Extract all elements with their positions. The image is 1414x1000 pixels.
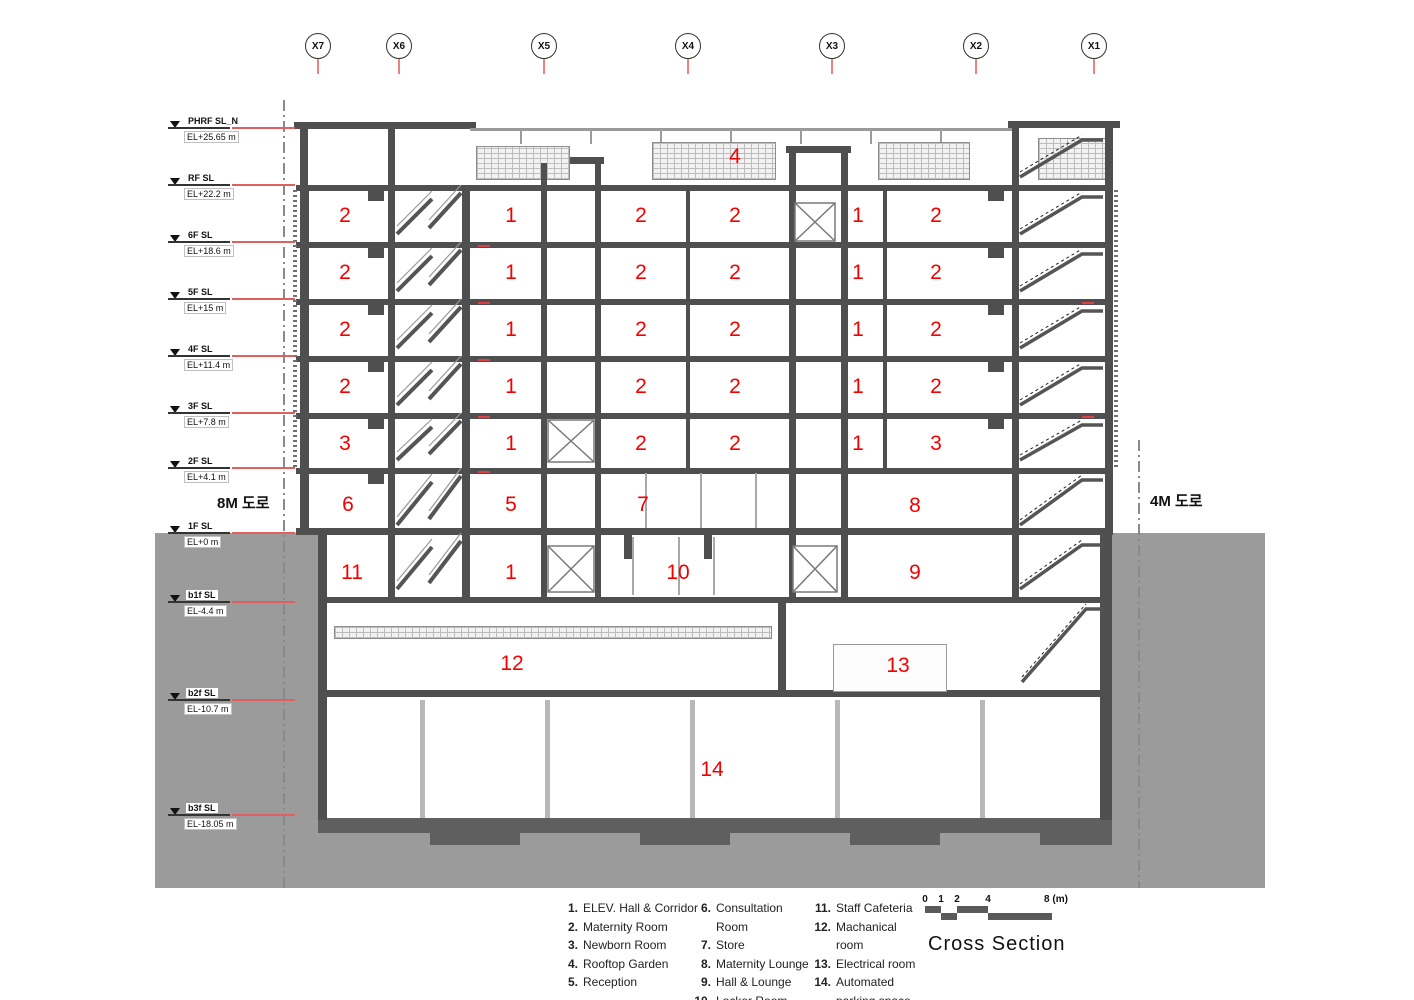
- level-line-black: [168, 127, 230, 129]
- level-line-black: [168, 467, 230, 469]
- legend-item-number: 9.: [693, 973, 711, 992]
- level-name: 1F SL: [186, 521, 215, 531]
- beam-cap: [368, 248, 384, 258]
- level-name: 4F SL: [186, 344, 215, 354]
- stair-tower-roof-slab: [1008, 121, 1120, 128]
- legend-item: 6.Consultation Room: [693, 899, 818, 936]
- legend-item: 5.Reception: [560, 973, 700, 992]
- level-elevation: EL-10.7 m: [184, 703, 232, 715]
- level-dash: [1082, 302, 1094, 304]
- level-line-red: [232, 184, 295, 186]
- legend-item: 9.Hall & Lounge: [693, 973, 818, 992]
- level-line-red: [232, 467, 295, 469]
- room-number-2: 2: [930, 375, 942, 399]
- scale-tick-label: 4: [985, 894, 991, 905]
- legend-item-label: ELEV. Hall & Corridor: [583, 899, 698, 918]
- property-line-left: [283, 100, 285, 888]
- beam-cap: [368, 362, 384, 372]
- room-number-1: 1: [505, 432, 517, 456]
- scale-tick-label: 0: [922, 894, 928, 905]
- level-name: 3F SL: [186, 401, 215, 411]
- scale-tick-label: 8 (m): [1044, 894, 1068, 905]
- legend-item-label: Hall & Lounge: [716, 973, 791, 992]
- grid-tick-x2: [975, 59, 977, 74]
- scale-segment: [988, 913, 1052, 920]
- level-line-red: [232, 127, 295, 129]
- legend-item-number: 10.: [693, 992, 711, 1000]
- b2-wall: [778, 600, 786, 690]
- legend-item-label: Maternity Room: [583, 918, 668, 937]
- beam-cap: [988, 419, 1004, 429]
- center-shaft-wall-left: [789, 152, 796, 600]
- beam-cap: [368, 474, 384, 484]
- scale-segment: [957, 906, 988, 913]
- grid-tick-x3: [831, 59, 833, 74]
- rooftop-planter: [476, 146, 570, 180]
- room-number-13: 13: [886, 654, 909, 678]
- grid-tick-x5: [543, 59, 545, 74]
- level-name: 2F SL: [186, 456, 215, 466]
- legend-item: 1.ELEV. Hall & Corridor: [560, 899, 700, 918]
- cross-section-drawing: 8M 도로 4M 도로 X7X6X5X4X3X2X1 PHRF SL_NEL+2…: [0, 0, 1414, 1000]
- beam-cap: [988, 362, 1004, 372]
- room-number-2: 2: [635, 432, 647, 456]
- slab-2f: [296, 468, 1113, 474]
- legend-item-label: Store: [716, 936, 745, 955]
- legend-item-number: 6.: [693, 899, 711, 936]
- basement-wall-left: [318, 533, 327, 820]
- room-number-6: 6: [342, 493, 354, 517]
- level-line-red: [232, 412, 295, 414]
- pergola-beam: [470, 128, 1015, 131]
- legend-item: 4.Rooftop Garden: [560, 955, 700, 974]
- basement-wall-right: [1100, 533, 1112, 820]
- b1-stub-wall: [704, 533, 712, 559]
- legend-item-number: 14.: [813, 973, 831, 1000]
- room-number-2: 2: [729, 261, 741, 285]
- exterior-wall-left: [300, 185, 309, 533]
- road-label-left: 8M 도로: [217, 492, 270, 513]
- room-number-2: 2: [339, 261, 351, 285]
- slab-b1: [322, 597, 1100, 603]
- b3-column: [835, 700, 840, 818]
- penthouse-roof-slab: [294, 122, 476, 129]
- elevator-shaft-wall-left: [541, 163, 547, 600]
- grid-marker-x7: X7: [305, 33, 331, 59]
- room-number-2: 2: [339, 318, 351, 342]
- grid-marker-x5: X5: [531, 33, 557, 59]
- level-dash: [478, 245, 490, 247]
- exterior-wall-left-penthouse: [300, 128, 308, 188]
- beam-cap: [988, 191, 1004, 201]
- room-number-14: 14: [700, 758, 723, 782]
- level-name: 5F SL: [186, 287, 215, 297]
- level-line-red: [232, 241, 295, 243]
- level-line-black: [168, 699, 230, 701]
- grid-marker-x3: X3: [819, 33, 845, 59]
- wall-insulation-hatch-right: [1114, 190, 1118, 468]
- legend-item: 14.Automated parking space: [813, 973, 925, 1000]
- room-number-1: 1: [505, 561, 517, 585]
- level-line-black: [168, 814, 230, 816]
- pergola-post: [520, 131, 522, 144]
- level-dash: [478, 302, 490, 304]
- legend-item-label: Newborn Room: [583, 936, 666, 955]
- legend-item-number: 11.: [813, 899, 831, 918]
- room-number-7: 7: [637, 493, 649, 517]
- legend-item-label: Automated parking space: [836, 973, 925, 1000]
- grid-tick-x7: [317, 59, 319, 74]
- beam-cap: [988, 248, 1004, 258]
- b1-stub-wall: [624, 533, 632, 559]
- legend-item-number: 8.: [693, 955, 711, 974]
- foundation-footing: [850, 833, 940, 845]
- room-number-4: 4: [729, 145, 741, 169]
- foundation-footing: [430, 833, 520, 845]
- room-number-3: 3: [339, 432, 351, 456]
- scale-tick-label: 2: [954, 894, 960, 905]
- level-line-red: [232, 298, 295, 300]
- room-number-2: 2: [930, 318, 942, 342]
- legend-item: 2.Maternity Room: [560, 918, 700, 937]
- legend-column-2: 6.Consultation Room7.Store8.Maternity Lo…: [693, 899, 818, 1000]
- grid-marker-x6: X6: [386, 33, 412, 59]
- beam-cap: [368, 191, 384, 201]
- room-number-1: 1: [852, 318, 864, 342]
- room-number-12: 12: [500, 652, 523, 676]
- room-number-1: 1: [852, 204, 864, 228]
- partition-wall: [686, 190, 690, 468]
- level-line-red: [232, 601, 295, 603]
- room-number-8: 8: [909, 494, 921, 518]
- legend-item-label: Consultation Room: [716, 899, 818, 936]
- level-elevation: EL+11.4 m: [184, 359, 233, 371]
- drawing-title: Cross Section: [928, 933, 1066, 956]
- level-elevation: EL+15 m: [184, 302, 226, 314]
- room-number-2: 2: [635, 261, 647, 285]
- property-line-right: [1138, 440, 1140, 888]
- scale-tick-label: 1: [938, 894, 944, 905]
- level-name: b3f SL: [186, 803, 218, 813]
- legend-item: 10.Locker Room: [693, 992, 818, 1000]
- room-number-2: 2: [729, 204, 741, 228]
- b3-column: [980, 700, 985, 818]
- legend-item: 13.Electrical room: [813, 955, 925, 974]
- legend-item: 11.Staff Cafeteria: [813, 899, 925, 918]
- level-line-black: [168, 601, 230, 603]
- room-number-2: 2: [729, 375, 741, 399]
- exterior-wall-right: [1105, 128, 1113, 533]
- room-number-2: 2: [930, 204, 942, 228]
- room-number-3: 3: [930, 432, 942, 456]
- rooftop-planter: [1038, 138, 1106, 180]
- b3-column: [690, 700, 695, 818]
- room-number-2: 2: [635, 318, 647, 342]
- legend-item: 12.Machanical room: [813, 918, 925, 955]
- level-elevation: EL+7.8 m: [184, 416, 229, 428]
- scale-segment: [925, 906, 941, 913]
- level-dash: [478, 416, 490, 418]
- locker-partition: [632, 537, 634, 595]
- level-elevation: EL+4.1 m: [184, 471, 229, 483]
- storefront-mullion: [755, 473, 757, 528]
- room-number-2: 2: [635, 375, 647, 399]
- partition-wall: [883, 190, 887, 468]
- level-name: b2f SL: [186, 688, 218, 698]
- beam-cap: [368, 305, 384, 315]
- legend-item: 7.Store: [693, 936, 818, 955]
- b3-column: [545, 700, 550, 818]
- road-label-right: 4M 도로: [1150, 490, 1203, 511]
- stair-shaft-wall-left: [388, 128, 395, 600]
- legend-item-label: Rooftop Garden: [583, 955, 668, 974]
- legend-item-number: 5.: [560, 973, 578, 992]
- wall-insulation-hatch-left: [293, 190, 297, 468]
- legend-column-1: 1.ELEV. Hall & Corridor2.Maternity Room3…: [560, 899, 700, 992]
- room-number-2: 2: [729, 318, 741, 342]
- grid-tick-x6: [398, 59, 400, 74]
- foundation-footing: [640, 833, 730, 845]
- level-elevation: EL+22.2 m: [184, 188, 234, 200]
- legend-item-number: 1.: [560, 899, 578, 918]
- level-line-black: [168, 412, 230, 414]
- room-number-1: 1: [852, 375, 864, 399]
- room-number-1: 1: [505, 261, 517, 285]
- legend-column-3: 11.Staff Cafeteria12.Machanical room13.E…: [813, 899, 925, 1000]
- legend-item-label: Machanical room: [836, 918, 925, 955]
- level-elevation: EL+25.65 m: [184, 131, 239, 143]
- rooftop-planter: [652, 142, 776, 180]
- beam-cap: [368, 419, 384, 429]
- legend-item: 8.Maternity Lounge: [693, 955, 818, 974]
- ceiling-duct-hatch: [334, 626, 772, 639]
- foundation-footing: [1040, 833, 1112, 845]
- level-line-red: [232, 814, 295, 816]
- level-elevation: EL-18.05 m: [184, 818, 237, 830]
- storefront-mullion: [700, 473, 702, 528]
- legend-item-label: Maternity Lounge: [716, 955, 809, 974]
- foundation-slab: [318, 818, 1112, 833]
- room-number-11: 11: [341, 561, 363, 585]
- room-number-1: 1: [852, 261, 864, 285]
- grid-marker-x4: X4: [675, 33, 701, 59]
- elevator-shaft-wall-right: [595, 163, 601, 600]
- level-line-red: [232, 532, 295, 534]
- room-number-2: 2: [930, 261, 942, 285]
- level-line-black: [168, 298, 230, 300]
- level-dash: [1082, 416, 1094, 418]
- legend-item-number: 7.: [693, 936, 711, 955]
- pergola-post: [590, 131, 592, 144]
- legend-item-label: Locker Room: [716, 992, 787, 1000]
- pergola-post: [800, 131, 802, 144]
- level-dash: [478, 359, 490, 361]
- locker-partition: [713, 537, 715, 595]
- rooftop-planter: [878, 142, 970, 180]
- level-name: b1f SL: [186, 590, 218, 600]
- pergola-post: [870, 131, 872, 144]
- grid-marker-x2: X2: [963, 33, 989, 59]
- room-number-10: 10: [666, 561, 689, 585]
- level-name: PHRF SL_N: [186, 116, 240, 126]
- level-line-red: [232, 699, 295, 701]
- level-line-black: [168, 532, 230, 534]
- level-name: RF SL: [186, 173, 216, 183]
- right-stair-zone-wall: [1012, 128, 1019, 600]
- room-number-2: 2: [339, 375, 351, 399]
- grid-tick-x4: [687, 59, 689, 74]
- legend-item-label: Reception: [583, 973, 637, 992]
- legend-item-label: Staff Cafeteria: [836, 899, 913, 918]
- beam-cap: [988, 305, 1004, 315]
- level-elevation: EL+0 m: [184, 536, 221, 548]
- room-number-1: 1: [852, 432, 864, 456]
- room-number-2: 2: [729, 432, 741, 456]
- legend-item-number: 2.: [560, 918, 578, 937]
- grid-marker-x1: X1: [1081, 33, 1107, 59]
- legend-item-number: 12.: [813, 918, 831, 955]
- level-line-black: [168, 241, 230, 243]
- legend-item-number: 4.: [560, 955, 578, 974]
- legend-item: 3.Newborn Room: [560, 936, 700, 955]
- level-name: 6F SL: [186, 230, 215, 240]
- level-line-black: [168, 184, 230, 186]
- room-number-2: 2: [339, 204, 351, 228]
- level-elevation: EL-4.4 m: [184, 605, 227, 617]
- level-line-red: [232, 355, 295, 357]
- level-dash: [478, 471, 490, 473]
- level-line-black: [168, 355, 230, 357]
- stair-shaft-wall-right: [462, 185, 470, 600]
- slab-b2: [322, 690, 1100, 697]
- level-elevation: EL+18.6 m: [184, 245, 234, 257]
- room-number-5: 5: [505, 493, 517, 517]
- room-number-2: 2: [635, 204, 647, 228]
- scale-segment: [941, 913, 957, 920]
- grid-tick-x1: [1093, 59, 1095, 74]
- legend-item-label: Electrical room: [836, 955, 915, 974]
- room-number-1: 1: [505, 204, 517, 228]
- legend-item-number: 3.: [560, 936, 578, 955]
- room-number-1: 1: [505, 375, 517, 399]
- center-shaft-wall-right: [841, 152, 848, 600]
- legend-item-number: 13.: [813, 955, 831, 974]
- room-number-9: 9: [909, 561, 921, 585]
- b3-column: [420, 700, 425, 818]
- room-number-1: 1: [505, 318, 517, 342]
